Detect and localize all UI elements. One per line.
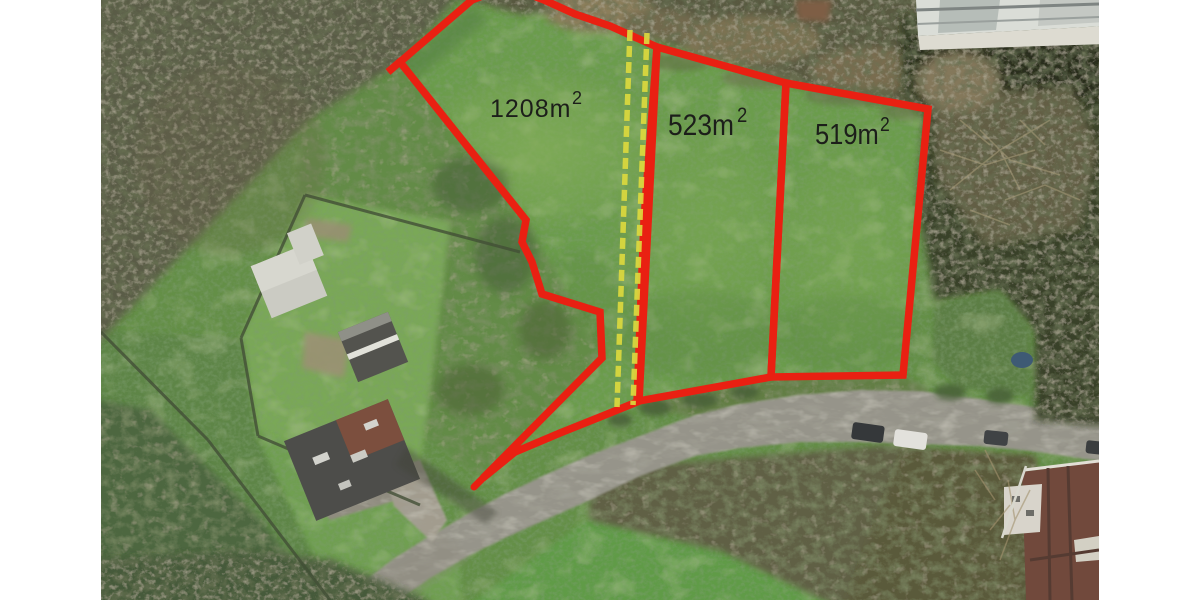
svg-text:2: 2	[880, 113, 890, 135]
svg-text:2: 2	[572, 88, 582, 108]
svg-text:2: 2	[737, 104, 747, 127]
svg-text:519m: 519m	[815, 117, 879, 150]
svg-text:523m: 523m	[668, 107, 734, 141]
svg-text:1208m: 1208m	[490, 95, 571, 123]
